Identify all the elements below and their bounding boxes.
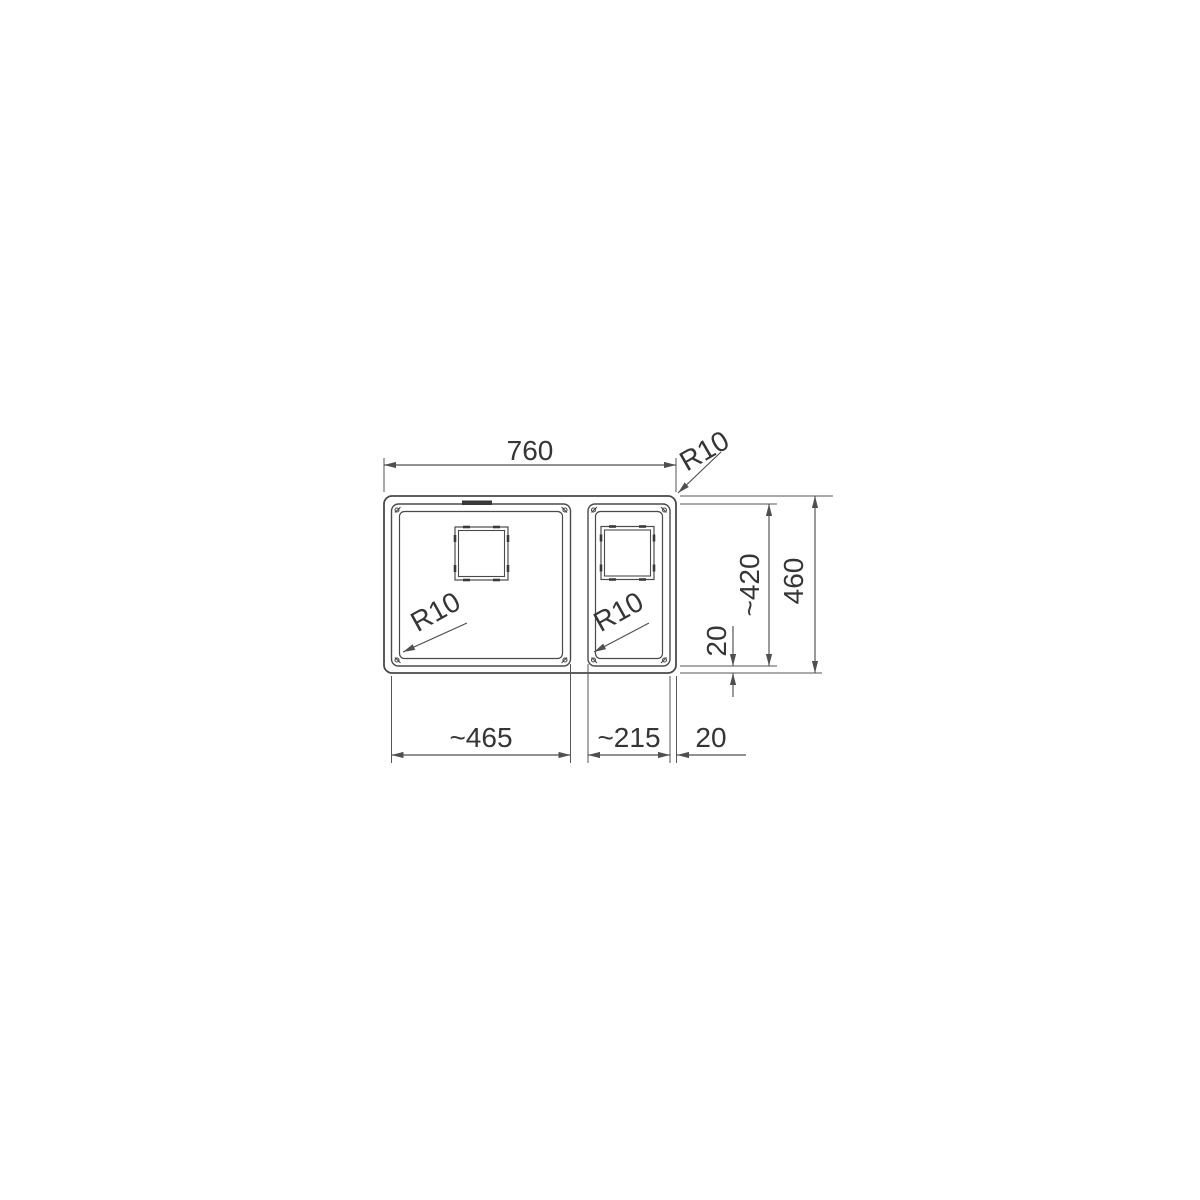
sink-drawing [384,496,676,673]
drain-small [601,527,654,580]
dim-label-small-bowl-radius: R10 [588,586,648,638]
dim-edge-offset-horizontal: 20 [677,676,747,763]
drain-large [455,527,508,580]
dim-label-overall-depth: 460 [778,558,809,605]
drain-small-inner [605,530,651,576]
overflow-mark [462,501,492,506]
dim-edge-offset-vertical: 20 [701,625,733,697]
dim-label-inner-depth: ~420 [734,553,765,616]
bowl-small-rim-outer [588,504,670,666]
dim-label-large-bowl-radius: R10 [405,586,465,638]
technical-drawing-canvas: 760 R10 460 ~420 20 ~465 ~215 [0,0,1200,1200]
drain-small-outer [601,527,654,580]
bowl-small [588,504,670,666]
bowl-large-rim-inner [400,512,563,659]
radius-callout-outer: R10 [674,425,734,493]
dim-label-edge-offset-vertical: 20 [701,625,732,656]
bowl-large [392,501,571,667]
dim-label-edge-offset-horizontal: 20 [695,722,726,753]
drain-large-outer [455,527,508,580]
radius-callout-small-bowl: R10 [588,586,649,652]
drain-large-ticks [455,527,508,580]
sink-outline [384,496,676,673]
drain-large-inner [459,531,505,577]
dim-large-bowl-width: ~465 [392,664,571,763]
dim-overall-width: 760 [384,435,676,492]
dim-small-bowl-width: ~215 [588,664,670,763]
drain-small-ticks [601,527,654,580]
dim-label-outer-radius: R10 [674,425,734,478]
bowl-large-rim-outer [392,504,571,666]
dim-label-overall-width: 760 [507,435,554,466]
dim-label-large-bowl-width: ~465 [449,722,512,753]
dim-label-small-bowl-width: ~215 [597,722,660,753]
radius-callout-large-bowl: R10 [403,586,467,652]
